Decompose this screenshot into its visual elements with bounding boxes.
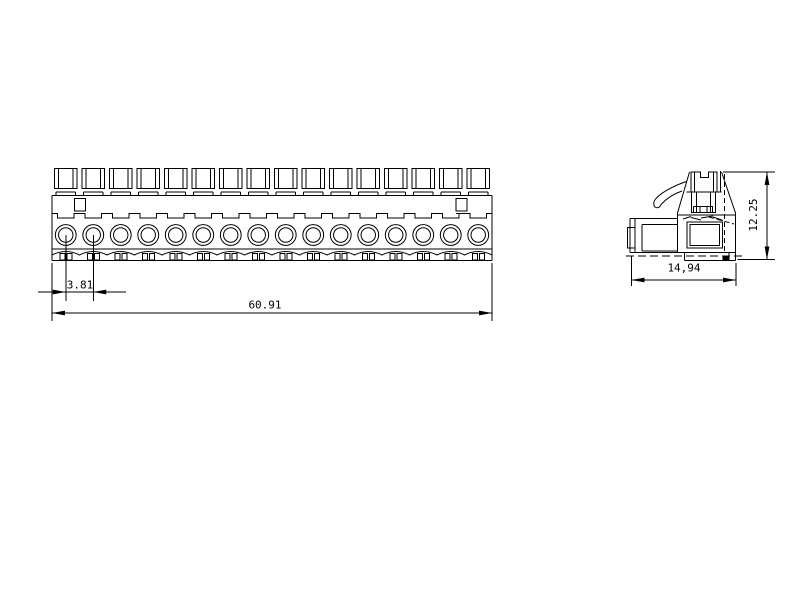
tab-inner-lines bbox=[359, 169, 379, 196]
plug-shroud bbox=[628, 219, 678, 253]
side-clamp-tab bbox=[691, 171, 721, 192]
mounting-foot bbox=[60, 254, 65, 261]
arrowhead bbox=[765, 172, 770, 185]
terminal-hole-inner bbox=[334, 228, 348, 242]
arrowhead bbox=[765, 247, 770, 260]
tab-inner-lines bbox=[276, 169, 296, 196]
mounting-foot bbox=[149, 254, 154, 261]
mounting-foot bbox=[87, 254, 92, 261]
mounting-foot bbox=[259, 254, 264, 261]
tab-inner-lines bbox=[56, 169, 76, 196]
mounting-foot bbox=[94, 254, 99, 261]
terminal-hole-inner bbox=[389, 228, 403, 242]
contact-cavity bbox=[687, 222, 723, 248]
tab-inner-lines bbox=[221, 169, 241, 196]
tab-inner-lines bbox=[469, 169, 489, 196]
mounting-foot bbox=[122, 254, 127, 261]
wire-clamp-tab bbox=[302, 169, 325, 189]
wire-clamp-tab bbox=[412, 169, 435, 189]
mounting-foot bbox=[177, 254, 182, 261]
mounting-foot bbox=[479, 254, 484, 261]
tab-inner-lines bbox=[84, 169, 104, 196]
arrowhead bbox=[479, 311, 492, 316]
front-view: 3.81 60.91 bbox=[38, 169, 492, 322]
arrowhead bbox=[723, 278, 736, 283]
mounting-foot bbox=[280, 254, 285, 261]
mounting-foot bbox=[232, 254, 237, 261]
tab-inner-lines bbox=[194, 169, 214, 196]
mounting-foot bbox=[397, 254, 402, 261]
dimension-pin-pitch: 3.81 bbox=[38, 235, 126, 301]
tab-inner-lines bbox=[304, 169, 324, 196]
terminal-hole-inner bbox=[279, 228, 293, 242]
terminal-hole-inner bbox=[196, 228, 210, 242]
terminal-hole-inner bbox=[444, 228, 458, 242]
mounting-foot bbox=[142, 254, 147, 261]
tab-inner-lines bbox=[441, 169, 461, 196]
mounting-foot bbox=[369, 254, 374, 261]
wire-clamp-tab bbox=[385, 169, 408, 189]
mounting-foot bbox=[252, 254, 257, 261]
mounting-foot bbox=[314, 254, 319, 261]
tab-inner-lines bbox=[414, 169, 434, 196]
mounting-foot bbox=[204, 254, 209, 261]
mounting-foot bbox=[342, 254, 347, 261]
mounting-foot bbox=[115, 254, 120, 261]
dimension-label-overall-width: 60.91 bbox=[248, 299, 281, 312]
castellation-path bbox=[52, 214, 492, 219]
dimension-side-height: 12.25 bbox=[723, 172, 775, 260]
side-view: 14,94 12.25 bbox=[626, 171, 775, 286]
mounting-foot bbox=[445, 254, 450, 261]
dimension-label-side-depth: 14,94 bbox=[667, 262, 700, 275]
tab-inner-lines bbox=[386, 169, 406, 196]
mounting-foot bbox=[170, 254, 175, 261]
screw-cavity bbox=[692, 192, 716, 213]
terminal-hole-inner bbox=[224, 228, 238, 242]
mounting-foot bbox=[390, 254, 395, 261]
tab-inner-lines bbox=[166, 169, 186, 196]
wire-clamp-tab bbox=[110, 169, 133, 189]
dimension-label-side-height: 12.25 bbox=[747, 198, 760, 231]
arrowhead bbox=[93, 290, 106, 295]
terminal-hole-inner bbox=[114, 228, 128, 242]
hidden-diagonal-line bbox=[709, 217, 734, 224]
solder-pin-section bbox=[723, 256, 730, 261]
keying-square-left bbox=[75, 199, 86, 212]
wire-clamp-tab bbox=[137, 169, 160, 189]
mounting-foot bbox=[335, 254, 340, 261]
terminal-hole-row bbox=[55, 225, 488, 246]
mounting-foot bbox=[417, 254, 422, 261]
wire-clamp-tab-row bbox=[55, 169, 490, 196]
terminal-hole-inner bbox=[169, 228, 183, 242]
tab-inner-lines bbox=[249, 169, 269, 196]
wire-clamp-tab bbox=[55, 169, 78, 189]
mounting-foot bbox=[307, 254, 312, 261]
wire-clamp-tab bbox=[357, 169, 380, 189]
terminal-block-drawing: 3.81 60.91 bbox=[0, 0, 800, 600]
mounting-foot bbox=[362, 254, 367, 261]
arrowhead bbox=[632, 278, 645, 283]
wire-clamp-tab bbox=[330, 169, 353, 189]
side-body-outline bbox=[630, 172, 736, 261]
terminal-hole-inner bbox=[141, 228, 155, 242]
mounting-foot bbox=[67, 254, 72, 261]
dimension-label-pin-pitch: 3.81 bbox=[67, 279, 94, 292]
tab-inner-lines bbox=[111, 169, 131, 196]
wire-clamp-tab bbox=[82, 169, 105, 189]
tab-inner-lines bbox=[331, 169, 351, 196]
arrowhead bbox=[53, 290, 66, 295]
tab-inner-lines bbox=[139, 169, 159, 196]
wire-clamp-tab bbox=[247, 169, 270, 189]
wire-clamp-tab bbox=[192, 169, 215, 189]
terminal-hole-inner bbox=[471, 228, 485, 242]
wire-clamp-tab bbox=[275, 169, 298, 189]
mounting-foot bbox=[225, 254, 230, 261]
mounting-foot bbox=[472, 254, 477, 261]
wire-clamp-tab bbox=[165, 169, 188, 189]
wire-clamp-tab bbox=[467, 169, 490, 189]
wire-clamp-tab bbox=[440, 169, 463, 189]
terminal-hole-inner bbox=[251, 228, 265, 242]
terminal-hole-inner bbox=[416, 228, 430, 242]
mounting-foot bbox=[197, 254, 202, 261]
wire-clamp-tab bbox=[220, 169, 243, 189]
mounting-foot bbox=[452, 254, 457, 261]
mounting-foot bbox=[287, 254, 292, 261]
castellated-edge bbox=[52, 214, 492, 219]
terminal-hole-inner bbox=[361, 228, 375, 242]
mounting-foot bbox=[424, 254, 429, 261]
release-lever bbox=[654, 182, 687, 208]
parting-line bbox=[678, 215, 735, 221]
arrowhead bbox=[52, 311, 65, 316]
terminal-hole-inner bbox=[306, 228, 320, 242]
cad-drawing-canvas: 3.81 60.91 bbox=[0, 0, 800, 600]
keying-square-right bbox=[456, 199, 467, 212]
